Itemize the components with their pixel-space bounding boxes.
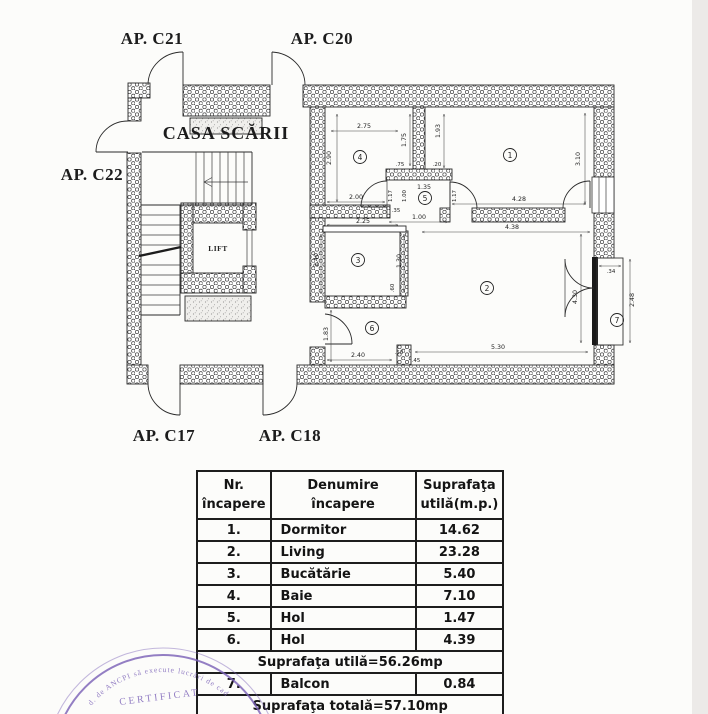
dim-lv-top: 4.38	[505, 224, 519, 231]
header-nr-line2: încapere	[202, 495, 266, 515]
row-area: 7.10	[416, 585, 504, 607]
row-area: 23.28	[416, 541, 504, 563]
bedroom-window	[592, 177, 614, 213]
dim-h5-small: .35	[392, 208, 401, 214]
stair-direction-arrow	[204, 178, 248, 187]
stamp-certificat-text: CERTIFICAT	[119, 687, 201, 708]
row-name: Living	[271, 541, 416, 563]
dim-r3-left: 2.40	[313, 253, 320, 267]
room-number-6: 6	[370, 324, 375, 333]
header-area-line1: Suprafaţa	[421, 476, 499, 496]
row-nr: 5.	[197, 607, 271, 629]
dim-balcony-width: .34	[607, 269, 616, 275]
row-name: Hol	[271, 607, 416, 629]
header-suprafata: Suprafaţa utilă(m.p.)	[416, 471, 504, 519]
dim-r4-left: 2.90	[326, 151, 333, 165]
table-row: 3. Bucătărie 5.40	[197, 563, 503, 585]
dim-h5-bottom: 1.00	[412, 214, 426, 221]
header-name-line2: încapere	[276, 495, 411, 515]
row-name: Bucătărie	[271, 563, 416, 585]
room-number-3: 3	[356, 256, 361, 265]
lift-label: LIFT	[208, 244, 228, 253]
row-nr: 4.	[197, 585, 271, 607]
row-area: 0.84	[416, 673, 504, 695]
stair-break-line	[139, 247, 181, 256]
dim-balcony-length: 2.48	[629, 293, 636, 307]
scanned-floorplan-page: LIFT	[0, 0, 708, 714]
dim-h5-mid: 1.00	[402, 189, 408, 202]
dim-h5-left: 1.17	[388, 190, 394, 202]
dim-r4-bottom: 2.00	[349, 194, 363, 201]
table-row: 5. Hol 1.47	[197, 607, 503, 629]
row-area: 1.47	[416, 607, 504, 629]
header-nr-line1: Nr.	[202, 476, 266, 496]
dim-r4-top: 2.75	[357, 123, 371, 130]
room-number-4: 4	[358, 153, 363, 162]
header-name-line1: Denumire	[276, 476, 411, 496]
row-area: 4.39	[416, 629, 504, 651]
dim-r1-left: 1.93	[435, 124, 442, 138]
dim-h5-tl: .75	[396, 162, 405, 168]
dim-r1-right: 3.10	[575, 152, 582, 166]
room-number-2: 2	[485, 284, 490, 293]
dim-stub-right: .45	[412, 358, 421, 364]
dim-r1-bottom: 4.28	[512, 196, 526, 203]
label-ap-c20: AP. C20	[291, 29, 353, 48]
dim-lv-bottom: 5.30	[491, 344, 505, 351]
row-nr: 3.	[197, 563, 271, 585]
dim-r3-corner: .60	[390, 283, 396, 292]
header-denumire: Denumire încapere	[271, 471, 416, 519]
label-ap-c17: AP. C17	[133, 426, 195, 445]
label-ap-c22: AP. C22	[61, 165, 123, 184]
table-row: 2. Living 23.28	[197, 541, 503, 563]
row-area: 5.40	[416, 563, 504, 585]
dim-stub-left: .50	[395, 350, 404, 356]
header-area-line2: utilă(m.p.)	[421, 495, 499, 515]
row-name: Baie	[271, 585, 416, 607]
certification-stamp: d. de ANCPI să execute lucrări de cad CE…	[40, 630, 300, 714]
label-ap-c18: AP. C18	[259, 426, 321, 445]
dim-h5-width: 1.35	[417, 184, 431, 191]
row-name: Dormitor	[271, 519, 416, 541]
dim-h6-left: 1.83	[323, 327, 330, 341]
dim-r3-top: 2.25	[356, 218, 370, 225]
row-area: 14.62	[416, 519, 504, 541]
dim-lv-right: 4.30	[572, 290, 579, 304]
dim-h5-tr: .20	[433, 162, 442, 168]
label-ap-c21: AP. C21	[121, 29, 183, 48]
row-nr: 1.	[197, 519, 271, 541]
table-header-row: Nr. încapere Denumire încapere Suprafaţa…	[197, 471, 503, 519]
dimension-lines	[321, 113, 630, 362]
table-row: 1. Dormitor 14.62	[197, 519, 503, 541]
stipple-strip-lift	[185, 296, 251, 321]
header-nr: Nr. încapere	[197, 471, 271, 519]
label-casa-scarii: CASA SCĂRII	[163, 122, 290, 143]
dim-r3-right: 1.30	[396, 254, 403, 268]
table-row: 4. Baie 7.10	[197, 585, 503, 607]
dim-h6-bottom: 2.40	[351, 352, 365, 359]
row-nr: 2.	[197, 541, 271, 563]
room-number-5: 5	[423, 194, 428, 203]
room-number-7: 7	[615, 316, 620, 325]
room-number-1: 1	[508, 151, 513, 160]
dim-r4-right: 1.75	[401, 133, 408, 147]
scan-edge-shading	[692, 0, 708, 714]
dim-h5-right: 1.17	[452, 190, 458, 202]
